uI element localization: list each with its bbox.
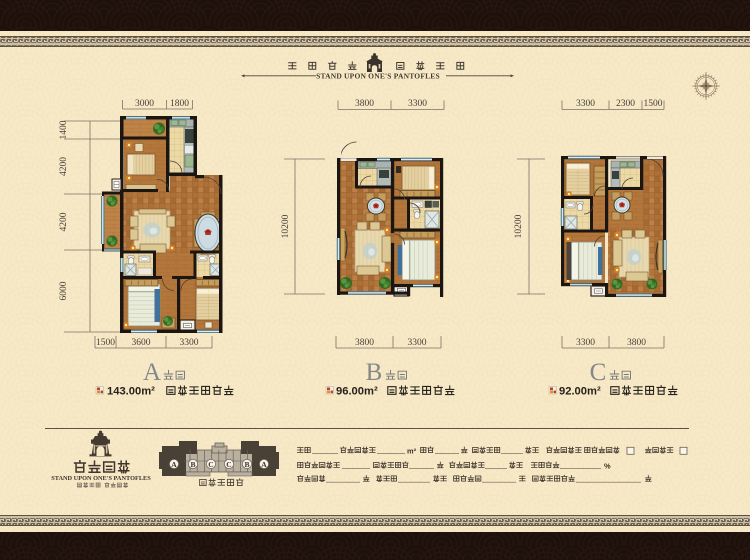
- svg-text:C: C: [590, 359, 607, 386]
- svg-text:B: B: [244, 460, 249, 469]
- svg-text:3300: 3300: [408, 99, 427, 109]
- svg-text:3000: 3000: [135, 99, 154, 109]
- svg-text:3800: 3800: [627, 338, 646, 348]
- svg-text:1500: 1500: [96, 338, 115, 348]
- svg-text:m²: m²: [407, 447, 417, 456]
- svg-text:3300: 3300: [180, 338, 199, 348]
- svg-text:STAND UPON ONE'S PANTOFLES: STAND UPON ONE'S PANTOFLES: [51, 475, 151, 482]
- svg-text:3800: 3800: [355, 99, 374, 109]
- svg-text:1500: 1500: [644, 99, 663, 109]
- svg-text:B: B: [366, 359, 383, 386]
- svg-text:143.00m²: 143.00m²: [107, 386, 155, 398]
- svg-text:3300: 3300: [408, 338, 427, 348]
- svg-text:3800: 3800: [355, 338, 374, 348]
- svg-text:2300: 2300: [616, 99, 635, 109]
- svg-text:STAND UPON ONE'S PANTOFLES: STAND UPON ONE'S PANTOFLES: [316, 71, 440, 80]
- svg-text:3600: 3600: [132, 338, 151, 348]
- svg-text:1400: 1400: [59, 120, 69, 139]
- svg-text:4200: 4200: [59, 157, 69, 176]
- svg-text:1800: 1800: [170, 99, 189, 109]
- svg-text:6000: 6000: [59, 281, 69, 300]
- svg-text:A: A: [171, 460, 177, 469]
- svg-text:4200: 4200: [59, 212, 69, 231]
- svg-text:%: %: [604, 462, 611, 471]
- svg-text:A: A: [143, 359, 161, 386]
- svg-text:C: C: [208, 460, 213, 469]
- svg-text:92.00m²: 92.00m²: [559, 386, 601, 398]
- svg-text:C: C: [226, 460, 231, 469]
- svg-text:3300: 3300: [576, 338, 595, 348]
- svg-text:B: B: [190, 460, 195, 469]
- svg-text:10200: 10200: [514, 214, 524, 238]
- svg-text:96.00m²: 96.00m²: [336, 386, 378, 398]
- svg-text:3300: 3300: [576, 99, 595, 109]
- svg-text:A: A: [261, 460, 267, 469]
- svg-text:10200: 10200: [281, 214, 291, 238]
